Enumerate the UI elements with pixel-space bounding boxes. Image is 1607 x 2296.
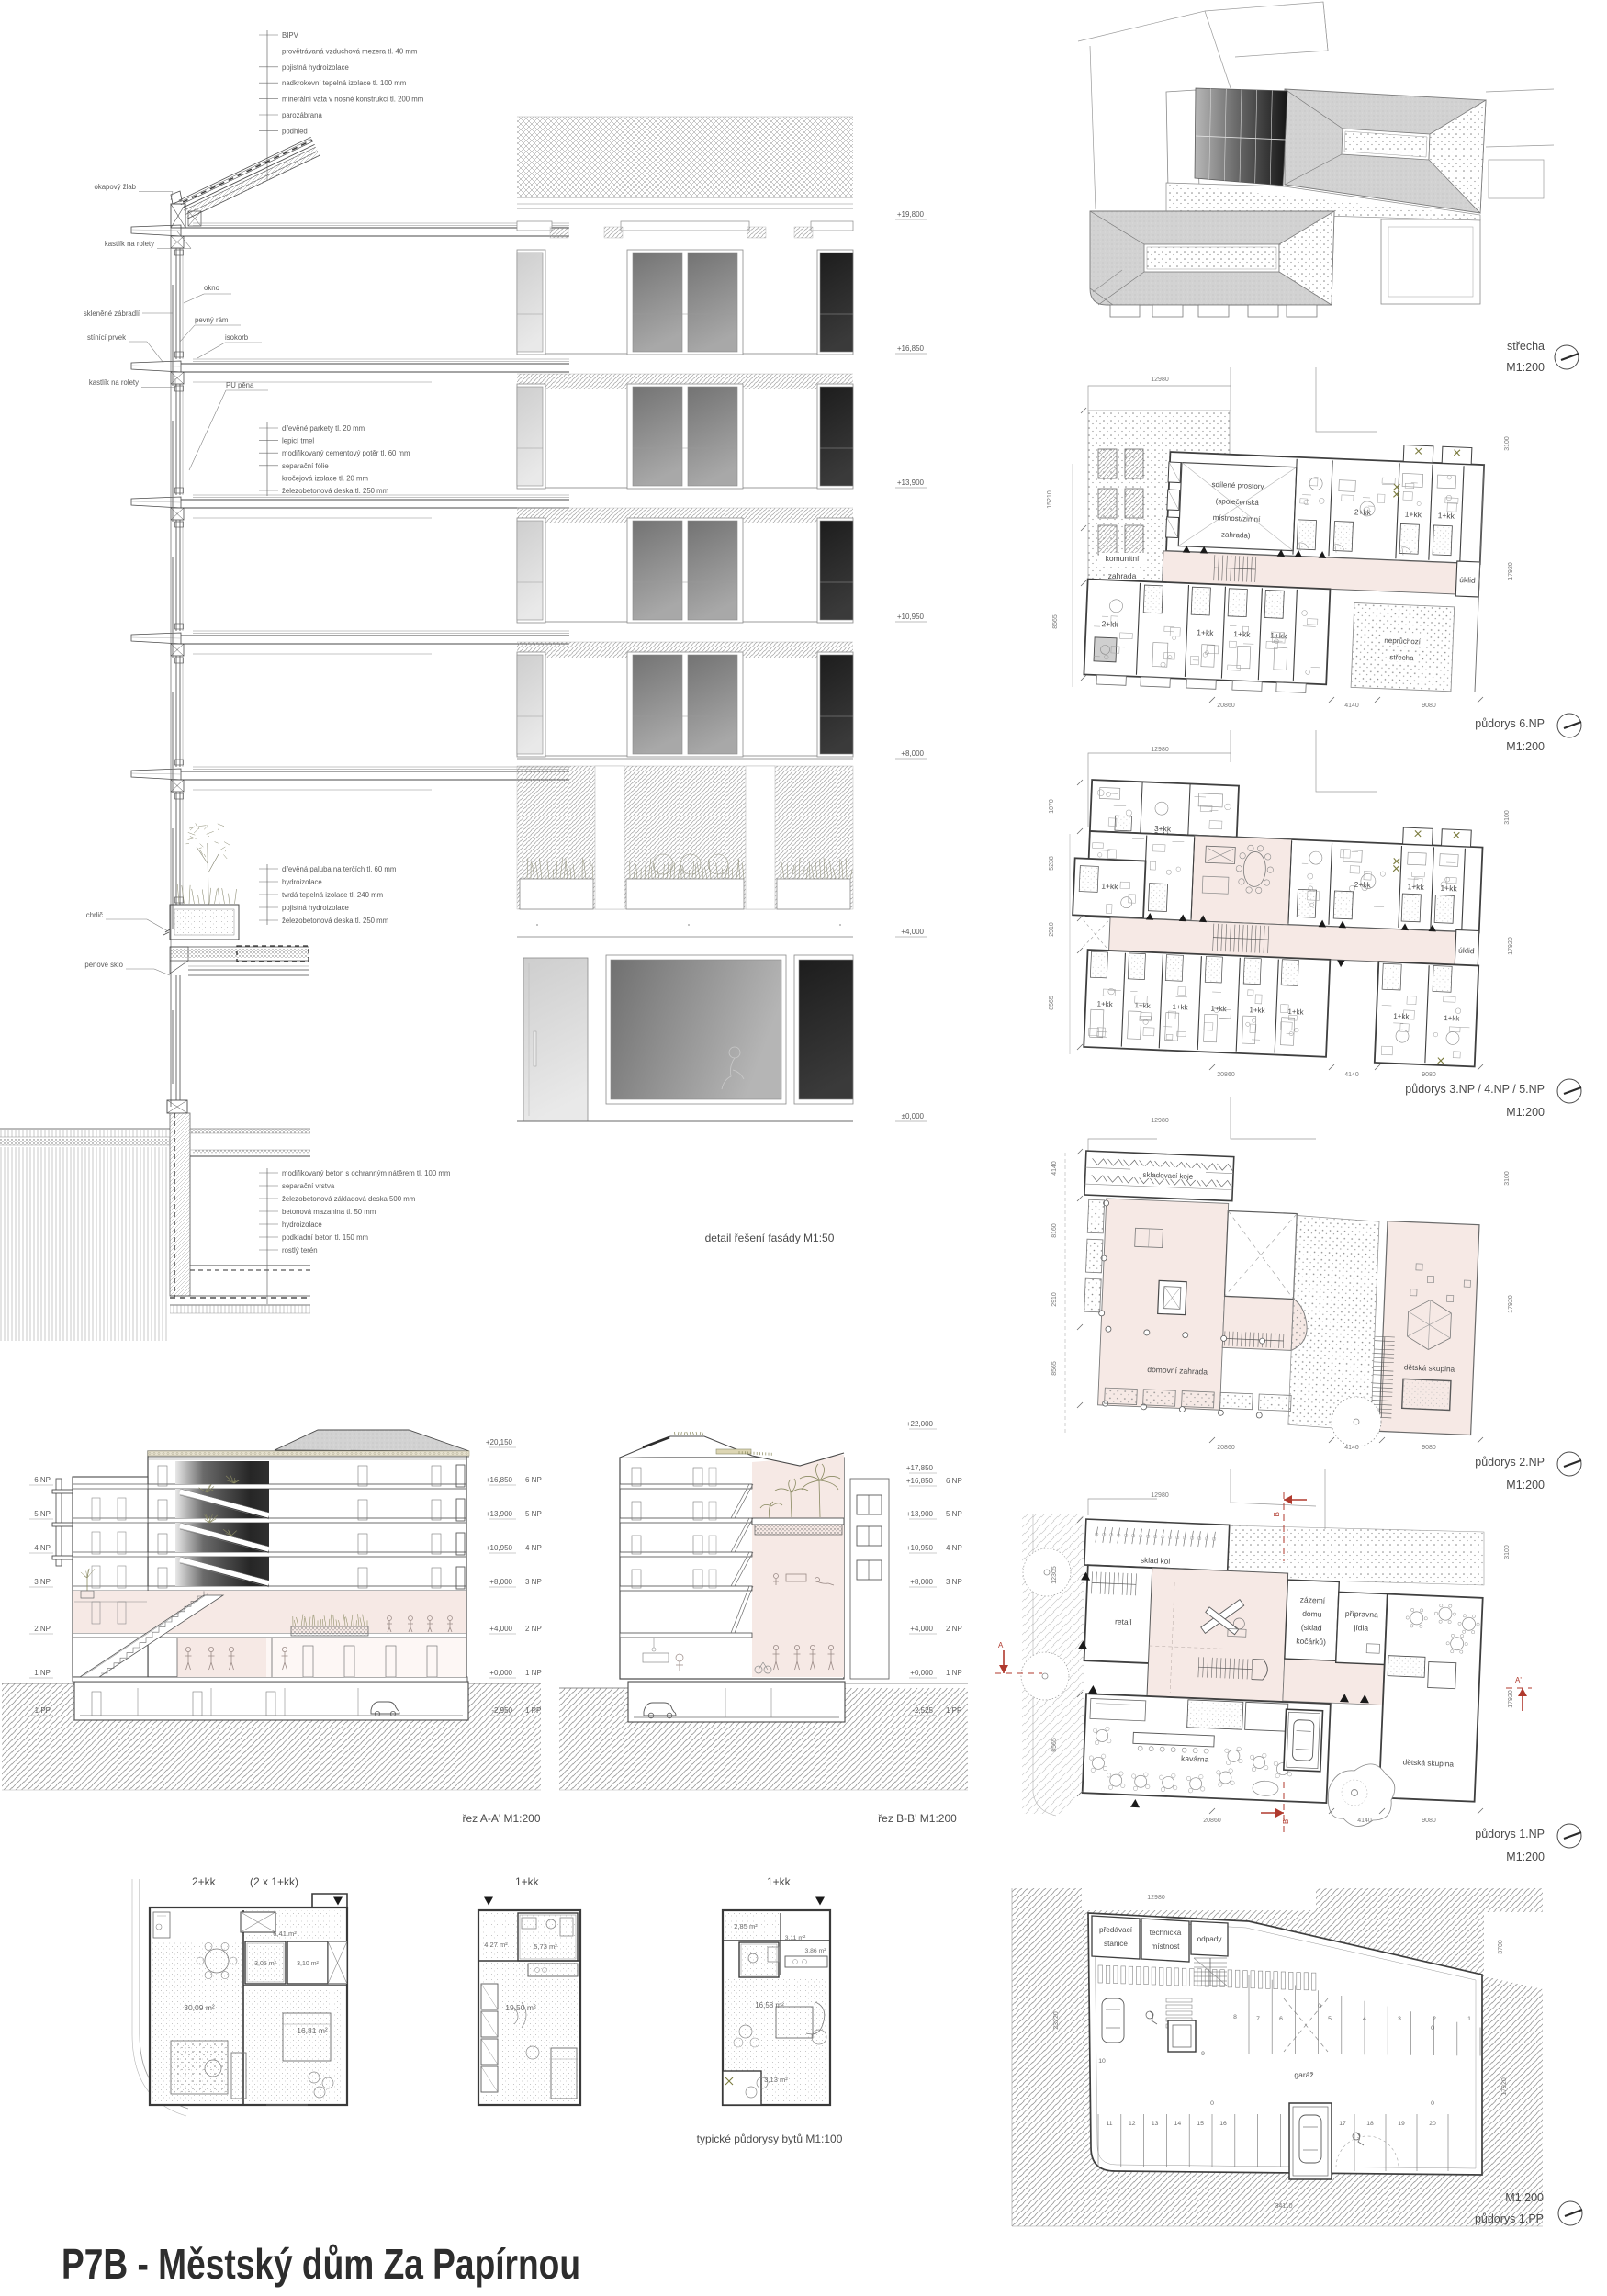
svg-text:odpady: odpady: [1197, 1935, 1223, 1943]
svg-text:7: 7: [1256, 2016, 1260, 2022]
svg-text:železobetonová základová deska: železobetonová základová deska 500 mm: [282, 1195, 415, 1203]
svg-text:stínící prvek: stínící prvek: [87, 333, 126, 342]
svg-text:2910: 2910: [1051, 1292, 1058, 1307]
svg-text:+8,000: +8,000: [901, 749, 924, 758]
svg-text:5 NP: 5 NP: [525, 1510, 542, 1518]
svg-text:2,85 m²: 2,85 m²: [734, 1922, 758, 1930]
svg-text:B': B': [1282, 1818, 1290, 1824]
svg-text:12980: 12980: [1151, 1118, 1169, 1124]
svg-text:střecha: střecha: [1507, 340, 1545, 353]
svg-text:19,50 m²: 19,50 m²: [505, 2003, 536, 2012]
svg-text:14: 14: [1174, 2121, 1182, 2127]
svg-text:1+kk: 1+kk: [1197, 627, 1214, 637]
svg-text:kavárna: kavárna: [1181, 1754, 1209, 1764]
svg-text:16: 16: [1219, 2121, 1227, 2127]
svg-text:5 NP: 5 NP: [34, 1510, 51, 1518]
svg-text:půdorys 2.NP: půdorys 2.NP: [1475, 1456, 1545, 1469]
svg-text:17: 17: [1339, 2121, 1346, 2127]
svg-text:3100: 3100: [1504, 810, 1511, 825]
svg-text:1+kk: 1+kk: [1438, 511, 1455, 521]
svg-text:9: 9: [1201, 2051, 1205, 2057]
svg-text:6 NP: 6 NP: [34, 1476, 51, 1484]
svg-text:BIPV: BIPV: [282, 31, 299, 39]
svg-text:+16,850: +16,850: [906, 1477, 934, 1485]
svg-text:8160: 8160: [1051, 1223, 1058, 1238]
svg-text:20860: 20860: [1203, 1818, 1221, 1824]
svg-text:3100: 3100: [1504, 436, 1511, 451]
svg-text:sklad kol: sklad kol: [1141, 1556, 1171, 1566]
svg-text:20860: 20860: [1217, 1072, 1235, 1078]
svg-text:+4,000: +4,000: [901, 928, 924, 936]
svg-text:5238: 5238: [1049, 856, 1055, 871]
svg-text:11: 11: [1106, 2121, 1112, 2127]
svg-text:4: 4: [1363, 2016, 1366, 2022]
svg-text:4 NP: 4 NP: [34, 1544, 51, 1552]
svg-text:12305: 12305: [1051, 1566, 1058, 1584]
svg-text:17920: 17920: [1508, 562, 1514, 580]
svg-text:+8,000: +8,000: [910, 1578, 933, 1586]
svg-text:separační fólie: separační fólie: [282, 462, 329, 470]
svg-text:20860: 20860: [1217, 1445, 1235, 1451]
svg-text:2 NP: 2 NP: [525, 1625, 542, 1633]
svg-text:zahrada): zahrada): [1221, 530, 1251, 539]
svg-text:střecha: střecha: [1389, 653, 1414, 662]
svg-text:8: 8: [1233, 2014, 1237, 2020]
svg-text:+17,850: +17,850: [906, 1464, 934, 1472]
svg-text:půdorys 1.PP: půdorys 1.PP: [1475, 2212, 1544, 2225]
svg-text:rostlý terén: rostlý terén: [282, 1246, 318, 1255]
svg-text:3,13 m²: 3,13 m²: [764, 2076, 788, 2084]
svg-text:1+kk: 1+kk: [1101, 882, 1118, 892]
svg-text:30,09 m²: 30,09 m²: [184, 2003, 215, 2012]
svg-text:M1:200: M1:200: [1506, 740, 1545, 753]
svg-text:3,05 m²: 3,05 m²: [254, 1961, 276, 1967]
svg-text:+0,000: +0,000: [910, 1669, 933, 1677]
svg-text:M1:200: M1:200: [1506, 361, 1545, 374]
svg-text:19: 19: [1398, 2121, 1405, 2127]
svg-text:+8,000: +8,000: [489, 1578, 512, 1586]
svg-text:hydroizolace: hydroizolace: [282, 1221, 322, 1229]
svg-text:nadkrokevní tepelná izolace tl: nadkrokevní tepelná izolace tl. 100 mm: [282, 79, 406, 87]
svg-text:+13,900: +13,900: [897, 478, 925, 487]
svg-text:±0,000: ±0,000: [902, 1112, 925, 1120]
svg-text:pojistná hydroizolace: pojistná hydroizolace: [282, 63, 349, 72]
svg-text:3 NP: 3 NP: [525, 1578, 542, 1586]
svg-text:20: 20: [1429, 2121, 1436, 2127]
svg-text:4140: 4140: [1344, 1445, 1359, 1451]
svg-text:hydroizolace: hydroizolace: [282, 878, 322, 886]
svg-text:12: 12: [1129, 2121, 1136, 2127]
svg-text:0: 0: [1431, 2100, 1434, 2107]
svg-text:zahrada: zahrada: [1108, 571, 1137, 580]
svg-text:1+kk: 1+kk: [1444, 1014, 1460, 1023]
svg-text:M1:200: M1:200: [1506, 1106, 1545, 1119]
svg-text:13: 13: [1152, 2121, 1159, 2127]
svg-text:3,11 m²: 3,11 m²: [785, 1935, 806, 1941]
svg-text:1+kk: 1+kk: [1134, 1001, 1151, 1010]
svg-text:okno: okno: [204, 284, 220, 292]
svg-text:isokorb: isokorb: [225, 333, 249, 342]
svg-text:17920: 17920: [1508, 1690, 1514, 1708]
svg-text:1+kk: 1+kk: [515, 1875, 540, 1888]
svg-text:separační vrstva: separační vrstva: [282, 1182, 335, 1190]
svg-text:1 NP: 1 NP: [525, 1669, 542, 1677]
svg-text:+10,950: +10,950: [486, 1544, 513, 1552]
svg-text:skleněné zábradlí: skleněné zábradlí: [84, 310, 140, 318]
svg-text:+19,800: +19,800: [897, 210, 925, 219]
svg-text:9080: 9080: [1422, 1072, 1436, 1078]
svg-text:přípravna: přípravna: [1345, 1609, 1379, 1619]
svg-text:garáž: garáž: [1294, 2070, 1313, 2079]
svg-text:12980: 12980: [1151, 1492, 1169, 1499]
svg-text:+4,000: +4,000: [910, 1625, 933, 1633]
svg-text:parozábrana: parozábrana: [282, 111, 322, 119]
svg-text:1+kk: 1+kk: [1172, 1003, 1188, 1012]
svg-text:2: 2: [1433, 2016, 1436, 2022]
svg-text:+16,850: +16,850: [897, 344, 925, 353]
svg-text:pevný rám: pevný rám: [195, 316, 228, 324]
svg-text:8565: 8565: [1049, 996, 1055, 1010]
svg-text:+10,950: +10,950: [906, 1544, 934, 1552]
svg-text:4140: 4140: [1357, 1818, 1372, 1824]
svg-text:úklid: úklid: [1459, 575, 1476, 585]
svg-text:půdorys 1.NP: půdorys 1.NP: [1475, 1828, 1545, 1840]
svg-text:kastlík na rolety: kastlík na rolety: [89, 378, 139, 387]
svg-text:okapový žlab: okapový žlab: [94, 183, 136, 191]
svg-text:jídla: jídla: [1353, 1623, 1368, 1633]
svg-text:kastlík na rolety: kastlík na rolety: [105, 240, 154, 248]
svg-text:1: 1: [1467, 2016, 1471, 2022]
svg-text:10: 10: [1098, 2058, 1106, 2065]
svg-text:kročejová izolace tl. 20 mm: kročejová izolace tl. 20 mm: [282, 474, 368, 482]
svg-text:B: B: [1273, 1512, 1281, 1516]
svg-text:+13,900: +13,900: [906, 1510, 934, 1518]
svg-text:2+kk: 2+kk: [1101, 619, 1118, 629]
svg-text:modifikovaný cementový potěr t: modifikovaný cementový potěr tl. 60 mm: [282, 449, 410, 457]
svg-text:podkladní beton tl. 150 mm: podkladní beton tl. 150 mm: [282, 1233, 368, 1242]
svg-text:(2 x 1+kk): (2 x 1+kk): [250, 1875, 298, 1888]
svg-text:A: A: [998, 1641, 1004, 1649]
svg-text:+10,950: +10,950: [897, 613, 925, 621]
svg-text:-2,950: -2,950: [491, 1706, 512, 1715]
svg-text:23220: 23220: [1053, 2011, 1060, 2030]
svg-text:domu: domu: [1302, 1609, 1322, 1619]
svg-text:chrlič: chrlič: [86, 911, 103, 919]
svg-text:16,81 m²: 16,81 m²: [297, 2026, 328, 2035]
svg-text:modifikovaný beton s ochranným: modifikovaný beton s ochranným nátěrem t…: [282, 1169, 450, 1177]
svg-text:15210: 15210: [1047, 490, 1053, 509]
svg-text:typické půdorysy bytů M1:100: typické půdorysy bytů M1:100: [697, 2133, 843, 2145]
svg-text:2910: 2910: [1049, 922, 1055, 937]
svg-text:A': A': [1515, 1676, 1522, 1684]
svg-text:2 NP: 2 NP: [34, 1625, 51, 1633]
svg-text:+22,000: +22,000: [906, 1420, 934, 1428]
svg-text:4140: 4140: [1344, 1072, 1359, 1078]
svg-text:3: 3: [1398, 2016, 1401, 2022]
svg-text:zázemí: zázemí: [1300, 1595, 1326, 1605]
svg-text:3100: 3100: [1504, 1545, 1511, 1559]
svg-text:20860: 20860: [1217, 703, 1235, 709]
svg-text:5 NP: 5 NP: [946, 1510, 962, 1518]
svg-text:16,58 m²: 16,58 m²: [755, 2001, 784, 2009]
svg-text:0: 0: [1431, 2025, 1434, 2032]
svg-text:1+kk: 1+kk: [1249, 1006, 1265, 1015]
svg-text:řez B-B' M1:200: řez B-B' M1:200: [878, 1812, 957, 1825]
svg-text:lepicí tmel: lepicí tmel: [282, 437, 314, 445]
svg-text:2+kk: 2+kk: [192, 1875, 217, 1888]
svg-text:(sklad: (sklad: [1301, 1623, 1322, 1633]
svg-text:5,73 m²: 5,73 m²: [534, 1942, 557, 1951]
svg-text:P7B - Městský dům Za Papírnou: P7B - Městský dům Za Papírnou: [62, 2240, 580, 2288]
svg-text:-2,525: -2,525: [912, 1706, 933, 1715]
svg-text:12980: 12980: [1151, 377, 1169, 383]
svg-text:retail: retail: [1115, 1616, 1132, 1626]
svg-text:+20,150: +20,150: [486, 1438, 513, 1446]
svg-text:+16,850: +16,850: [486, 1476, 513, 1484]
svg-text:34110: 34110: [1275, 2203, 1293, 2210]
svg-text:1 PP: 1 PP: [525, 1706, 541, 1715]
svg-text:4 NP: 4 NP: [525, 1544, 542, 1552]
svg-text:tvrdá tepelná izolace tl. 240: tvrdá tepelná izolace tl. 240 mm: [282, 891, 383, 899]
svg-text:1+kk: 1+kk: [1405, 510, 1422, 520]
svg-text:půdorys 3.NP / 4.NP / 5.NP: půdorys 3.NP / 4.NP / 5.NP: [1405, 1083, 1545, 1096]
svg-text:komunitní: komunitní: [1106, 554, 1140, 563]
svg-text:1 NP: 1 NP: [34, 1669, 51, 1677]
svg-text:3 NP: 3 NP: [34, 1578, 51, 1586]
svg-text:úklid: úklid: [1458, 946, 1475, 956]
svg-text:+13,900: +13,900: [486, 1510, 513, 1518]
svg-text:0: 0: [1318, 2003, 1321, 2009]
svg-text:9080: 9080: [1422, 1445, 1436, 1451]
svg-text:+0,000: +0,000: [489, 1669, 512, 1677]
svg-text:17920: 17920: [1508, 937, 1514, 955]
svg-text:3,10 m²: 3,10 m²: [297, 1961, 319, 1967]
svg-text:4140: 4140: [1051, 1161, 1058, 1176]
svg-text:1 PP: 1 PP: [35, 1706, 51, 1715]
svg-text:dřevěná paluba na terčích tl.: dřevěná paluba na terčích tl. 60 mm: [282, 865, 396, 873]
svg-text:18: 18: [1366, 2121, 1374, 2127]
svg-text:17920: 17920: [1508, 1295, 1514, 1313]
svg-text:stanice: stanice: [1104, 1940, 1128, 1948]
svg-text:podhled: podhled: [282, 127, 308, 135]
svg-text:1+kk: 1+kk: [767, 1875, 792, 1888]
svg-text:12980: 12980: [1151, 747, 1169, 753]
svg-text:6,41 m²: 6,41 m²: [273, 1930, 297, 1938]
svg-text:6 NP: 6 NP: [525, 1476, 542, 1484]
svg-text:6 NP: 6 NP: [946, 1477, 962, 1485]
svg-text:3700: 3700: [1498, 1940, 1504, 1954]
svg-text:9080: 9080: [1422, 1818, 1436, 1824]
svg-text:4 NP: 4 NP: [946, 1544, 962, 1552]
svg-text:betonová mazanina tl. 50 mm: betonová mazanina tl. 50 mm: [282, 1208, 376, 1216]
svg-text:předávací: předávací: [1099, 1926, 1133, 1934]
svg-text:M1:200: M1:200: [1506, 1851, 1545, 1863]
svg-text:6: 6: [1279, 2016, 1283, 2022]
svg-text:M1:200: M1:200: [1506, 1479, 1545, 1491]
svg-text:4,27 m²: 4,27 m²: [484, 1941, 508, 1949]
svg-text:1 PP: 1 PP: [946, 1706, 961, 1715]
svg-text:5: 5: [1328, 2016, 1332, 2022]
svg-text:12980: 12980: [1147, 1895, 1165, 1901]
svg-text:2 NP: 2 NP: [946, 1625, 962, 1633]
svg-text:8565: 8565: [1051, 1361, 1058, 1376]
svg-text:4140: 4140: [1344, 703, 1359, 709]
svg-text:kočárků): kočárků): [1296, 1637, 1326, 1647]
svg-text:8565: 8565: [1051, 1738, 1058, 1752]
svg-text:0: 0: [1210, 2100, 1214, 2107]
svg-text:17920: 17920: [1501, 2077, 1508, 2096]
svg-text:2+kk: 2+kk: [1354, 880, 1371, 890]
svg-text:pěnové sklo: pěnové sklo: [84, 961, 123, 969]
svg-text:1 NP: 1 NP: [946, 1669, 962, 1677]
svg-text:3 NP: 3 NP: [946, 1578, 962, 1586]
svg-text:3,86 m²: 3,86 m²: [804, 1948, 826, 1954]
svg-text:detail řešení fasády M1:50: detail řešení fasády M1:50: [705, 1232, 835, 1244]
svg-text:řez A-A' M1:200: řez A-A' M1:200: [463, 1812, 541, 1825]
svg-text:1+kk: 1+kk: [1440, 884, 1457, 894]
svg-text:8565: 8565: [1052, 614, 1059, 629]
svg-text:provětrávaná vzduchová mezera: provětrávaná vzduchová mezera tl. 40 mm: [282, 47, 417, 55]
svg-text:1+kk: 1+kk: [1096, 999, 1113, 1008]
svg-text:železobetonová deska tl. 250 m: železobetonová deska tl. 250 mm: [282, 917, 388, 925]
svg-text:M1:200: M1:200: [1505, 2191, 1544, 2204]
svg-text:minerální vata v nosné konstru: minerální vata v nosné konstrukci tl. 20…: [282, 96, 423, 104]
svg-text:3+kk: 3+kk: [1154, 824, 1172, 834]
svg-text:technická: technická: [1150, 1929, 1182, 1937]
svg-text:pojistná hydroizolace: pojistná hydroizolace: [282, 904, 349, 912]
svg-text:neprůchozí: neprůchozí: [1384, 636, 1422, 647]
svg-text:15: 15: [1197, 2121, 1204, 2127]
svg-text:půdorys 6.NP: půdorys 6.NP: [1475, 717, 1545, 730]
svg-text:9080: 9080: [1422, 703, 1436, 709]
svg-text:dřevěné parkety tl. 20 mm: dřevěné parkety tl. 20 mm: [282, 424, 365, 433]
svg-text:1070: 1070: [1049, 799, 1055, 814]
svg-text:PU pěna: PU pěna: [226, 381, 254, 389]
svg-text:3100: 3100: [1504, 1171, 1511, 1186]
svg-text:železobetonová deska tl. 250 m: železobetonová deska tl. 250 mm: [282, 487, 388, 495]
svg-text:místnost: místnost: [1152, 1942, 1181, 1951]
svg-text:+4,000: +4,000: [489, 1625, 512, 1633]
